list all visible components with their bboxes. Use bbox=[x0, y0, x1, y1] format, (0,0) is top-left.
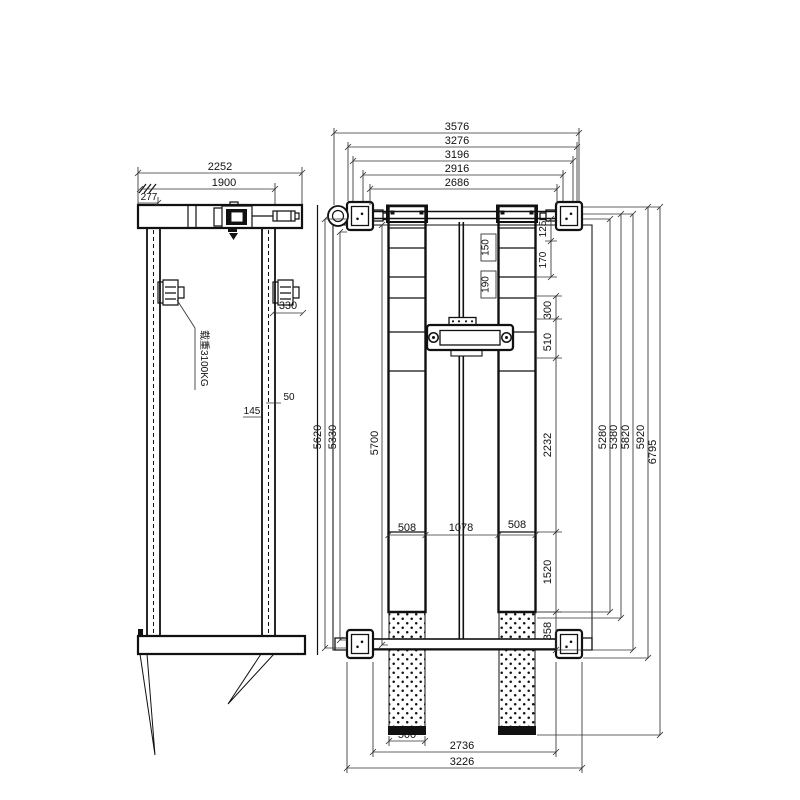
side-solid-details bbox=[138, 209, 247, 636]
dim-step-1520: 1520 bbox=[542, 560, 554, 584]
dim-length-5820: 5820 bbox=[620, 425, 632, 449]
lift-technical-drawing: 2252 1900 277 330 50 145 载重3100KG bbox=[0, 0, 800, 800]
dim-length-5920: 5920 bbox=[635, 425, 647, 449]
dim-step-300: 300 bbox=[542, 301, 554, 319]
dim-side-detail-145: 145 bbox=[244, 406, 261, 417]
dim-step-358: 358 bbox=[542, 622, 554, 640]
dim-runway-1: 1078 bbox=[449, 522, 473, 534]
side-column-centerlines bbox=[154, 230, 269, 634]
jack-roller-left-pin bbox=[432, 336, 435, 339]
dim-step-150: 150 bbox=[481, 239, 492, 256]
dim-step-2232: 2232 bbox=[542, 433, 554, 457]
plan-structure bbox=[328, 202, 592, 735]
dim-step-170: 170 bbox=[538, 251, 549, 268]
dim-step-510: 510 bbox=[542, 333, 554, 351]
plan-runway-right bbox=[499, 206, 536, 612]
capacity-label: 载重3100KG bbox=[198, 330, 211, 387]
side-columns bbox=[147, 228, 275, 636]
drawing-canvas: 2252 1900 277 330 50 145 载重3100KG bbox=[0, 0, 800, 800]
dim-plan-top-2: 3196 bbox=[445, 149, 469, 161]
dim-side-detail-50: 50 bbox=[283, 392, 295, 403]
jack-roller-right-pin bbox=[505, 336, 508, 339]
plan-runway-top-plates bbox=[387, 206, 537, 223]
plan-jack-beam bbox=[427, 318, 513, 357]
plan-post-inners bbox=[352, 207, 578, 654]
side-details bbox=[139, 184, 318, 655]
dim-runway-0: 508 bbox=[398, 522, 416, 534]
side-mech-window bbox=[231, 212, 243, 222]
plan-ramp-right bbox=[499, 612, 535, 727]
dim-runway-2: 508 bbox=[508, 519, 526, 531]
dim-plan-top-1: 3276 bbox=[445, 135, 469, 147]
dim-side-column-spacing: 1900 bbox=[212, 177, 236, 189]
dim-length-5700: 5700 bbox=[369, 431, 381, 455]
dim-side-overall-width: 2252 bbox=[208, 161, 232, 173]
plan-runway-rungs bbox=[389, 228, 535, 532]
plan-center-track bbox=[459, 222, 463, 639]
dim-side-motor-offset: 330 bbox=[279, 300, 297, 312]
dim-bottom-2736: 2736 bbox=[450, 740, 474, 752]
dim-bottom-500: 500 bbox=[398, 729, 416, 741]
plan-ramp-left bbox=[389, 612, 425, 727]
dim-step-190: 190 bbox=[481, 276, 492, 293]
dim-plan-top-0: 3576 bbox=[445, 121, 469, 133]
side-top-beam-and-base bbox=[138, 205, 305, 654]
plan-view: 3576 3276 3196 2916 2686 508 1078 508 12… bbox=[312, 121, 663, 773]
plan-ramp-right-end bbox=[498, 726, 536, 735]
dim-length-6795: 6795 bbox=[647, 440, 659, 464]
dim-plan-top-3: 2916 bbox=[445, 163, 469, 175]
dim-length-5330: 5330 bbox=[327, 425, 339, 449]
jack-window bbox=[440, 331, 500, 346]
dim-plan-top-4: 2686 bbox=[445, 177, 469, 189]
plan-runway-left bbox=[389, 206, 426, 612]
plan-bottom-crossbeam bbox=[373, 639, 556, 649]
dim-length-5380: 5380 bbox=[608, 425, 620, 449]
dim-step-125: 125 bbox=[538, 220, 549, 237]
dim-side-end-offset: 277 bbox=[141, 192, 158, 203]
dim-length-5620: 5620 bbox=[312, 425, 324, 449]
dim-bottom-3226: 3226 bbox=[450, 756, 474, 768]
side-structure bbox=[138, 184, 318, 755]
side-ramps bbox=[140, 654, 274, 755]
plan-power-unit-inner bbox=[333, 211, 344, 222]
plan-top-crossbeam bbox=[373, 212, 556, 219]
side-view: 2252 1900 277 330 50 145 载重3100KG bbox=[135, 161, 318, 755]
